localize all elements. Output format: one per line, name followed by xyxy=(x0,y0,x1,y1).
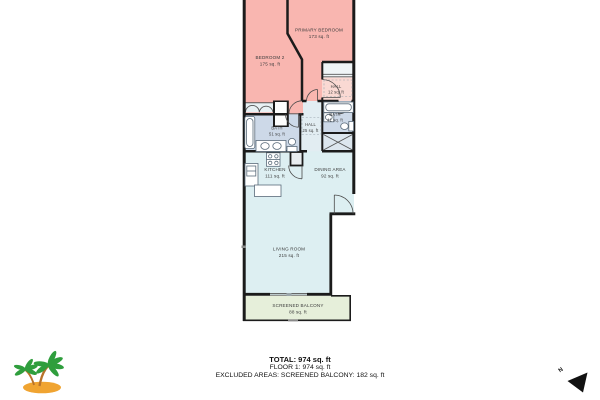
label-living-room-area: 215 sq. ft xyxy=(279,253,300,258)
bathtub-basin xyxy=(247,119,253,147)
label-dining-area: DINING AREA xyxy=(314,167,346,172)
label-primary-bedroom: PRIMARY BEDROOM xyxy=(295,28,343,33)
area-summary: TOTAL: 974 sq. ft FLOOR 1: 974 sq. ft EX… xyxy=(0,356,600,379)
label-screened-balcony: SCREENED BALCONY xyxy=(272,303,323,308)
sink-right xyxy=(273,143,281,150)
label-hall-25: HALL xyxy=(305,122,316,127)
label-bedroom-2: BEDROOM 2 xyxy=(256,55,285,60)
label-hall-12: HALL xyxy=(331,84,342,89)
patio-door-handle-tick xyxy=(287,293,292,296)
excluded-area-text: EXCLUDED AREAS: SCREENED BALCONY: 182 sq… xyxy=(0,372,600,380)
floor-plan-drawing: PRIMARY BEDROOM 173 sq. ft BEDROOM 2 175… xyxy=(0,0,600,400)
kitchen-island xyxy=(255,185,282,197)
floor1-area-text: FLOOR 1: 974 sq. ft xyxy=(0,364,600,372)
label-bath-41: BATH xyxy=(329,112,340,117)
balcony-screen-door-tick xyxy=(288,319,298,321)
label-living-room: LIVING ROOM xyxy=(273,247,305,252)
burner xyxy=(269,161,272,164)
label-hall-25-area: 25 sq. ft xyxy=(303,128,320,133)
toilet-bowl-bath51 xyxy=(288,138,295,145)
total-area-text: TOTAL: 974 sq. ft xyxy=(0,356,600,364)
pantry xyxy=(291,152,303,166)
toilet-bowl-bath41 xyxy=(341,123,349,130)
toilet-tank-bath51 xyxy=(287,147,297,152)
burner xyxy=(275,155,278,158)
floor-plan-page: PRIMARY BEDROOM 173 sq. ft BEDROOM 2 175… xyxy=(0,0,600,400)
wall-tick-left xyxy=(242,246,246,249)
burner xyxy=(269,155,272,158)
label-bedroom-2-area: 175 sq. ft xyxy=(260,62,281,67)
label-bath-51-area: 51 sq. ft xyxy=(269,131,286,136)
label-kitchen-area: 111 sq. ft xyxy=(265,174,285,179)
label-bath-51: BATH xyxy=(271,126,282,131)
burner xyxy=(275,161,278,164)
shower-tub-basin xyxy=(326,104,352,111)
logo-sand xyxy=(23,382,61,394)
living-right-walls xyxy=(330,214,356,296)
label-screened-balcony-area: 88 sq. ft xyxy=(289,310,307,315)
room-fill-balcony xyxy=(244,296,351,321)
label-primary-bedroom-area: 173 sq. ft xyxy=(309,34,330,39)
sink-left xyxy=(261,143,269,150)
label-bath-41-area: 41 sq. ft xyxy=(327,118,344,123)
label-hall-12-area: 12 sq. ft xyxy=(328,90,345,95)
room-fill-primary-closet xyxy=(322,62,354,78)
label-dining-area-area: 92 sq. ft xyxy=(321,174,339,179)
toilet-tank-bath41 xyxy=(349,122,354,132)
label-kitchen: KITCHEN xyxy=(264,167,285,172)
